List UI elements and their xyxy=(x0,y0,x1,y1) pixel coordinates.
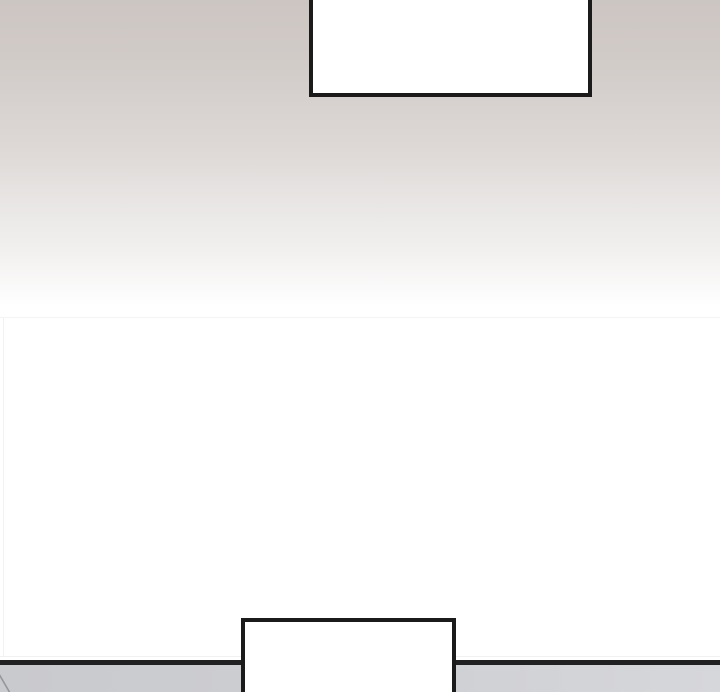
speech-bubble-top xyxy=(309,0,592,97)
speech-bubble-top-text xyxy=(313,0,588,93)
panel-border-left xyxy=(3,318,4,656)
panel-seam-line xyxy=(0,317,720,318)
comic-page xyxy=(0,0,720,692)
speech-bubble-bottom xyxy=(241,618,456,692)
speech-bubble-bottom-text xyxy=(245,622,452,692)
